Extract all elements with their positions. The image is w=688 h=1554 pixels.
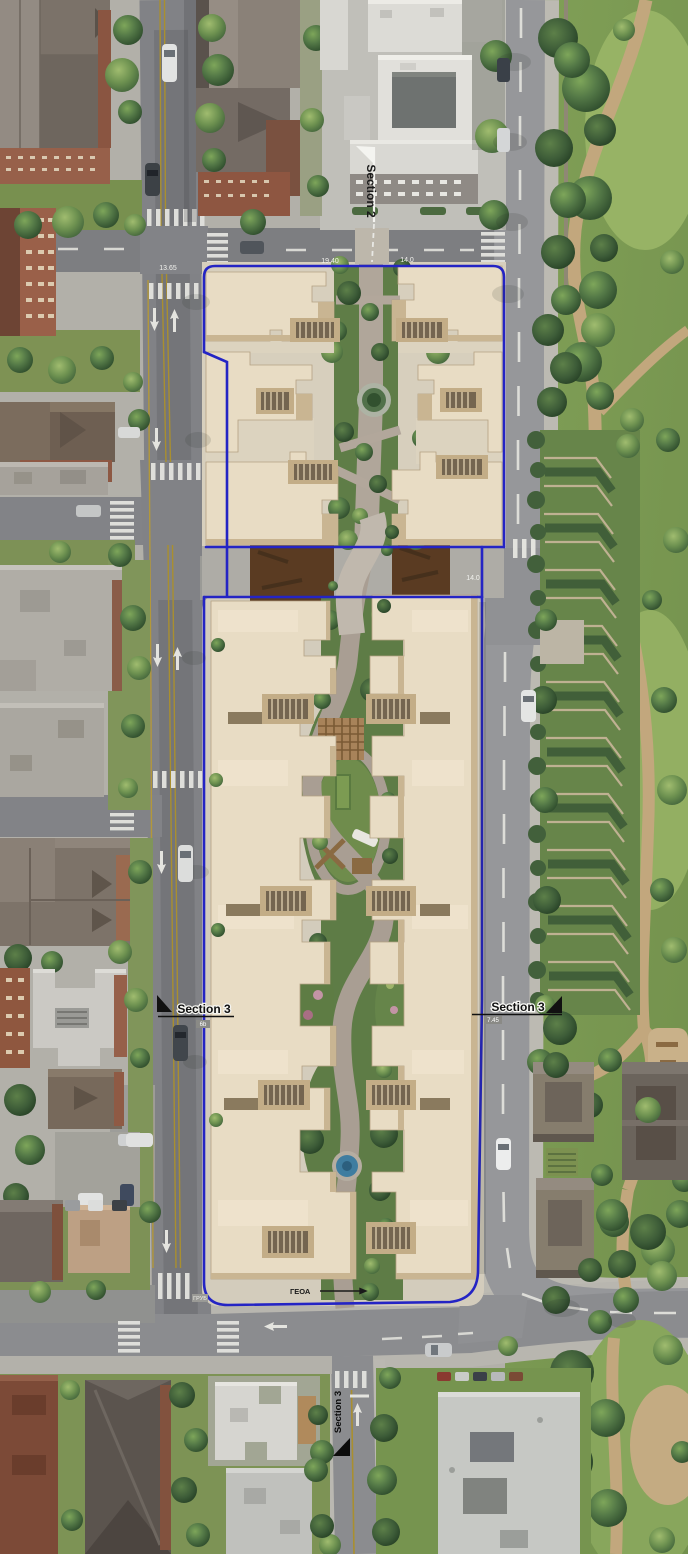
svg-text:ГРУБ: ГРУБ — [193, 1296, 207, 1302]
svg-text:Section 2: Section 2 — [364, 164, 378, 218]
svg-text:Section 3: Section 3 — [177, 1002, 231, 1016]
svg-text:7.45: 7.45 — [487, 1018, 499, 1024]
svg-text:13.65: 13.65 — [159, 265, 177, 272]
svg-text:Section 3: Section 3 — [491, 1000, 545, 1014]
svg-text:6b: 6b — [200, 1022, 207, 1028]
svg-text:14.0: 14.0 — [466, 575, 480, 582]
svg-text:14.0: 14.0 — [400, 257, 414, 264]
svg-text:ГЕОА: ГЕОА — [290, 1287, 311, 1296]
svg-text:19.40: 19.40 — [321, 258, 339, 265]
svg-text:Section 3: Section 3 — [333, 1391, 344, 1433]
